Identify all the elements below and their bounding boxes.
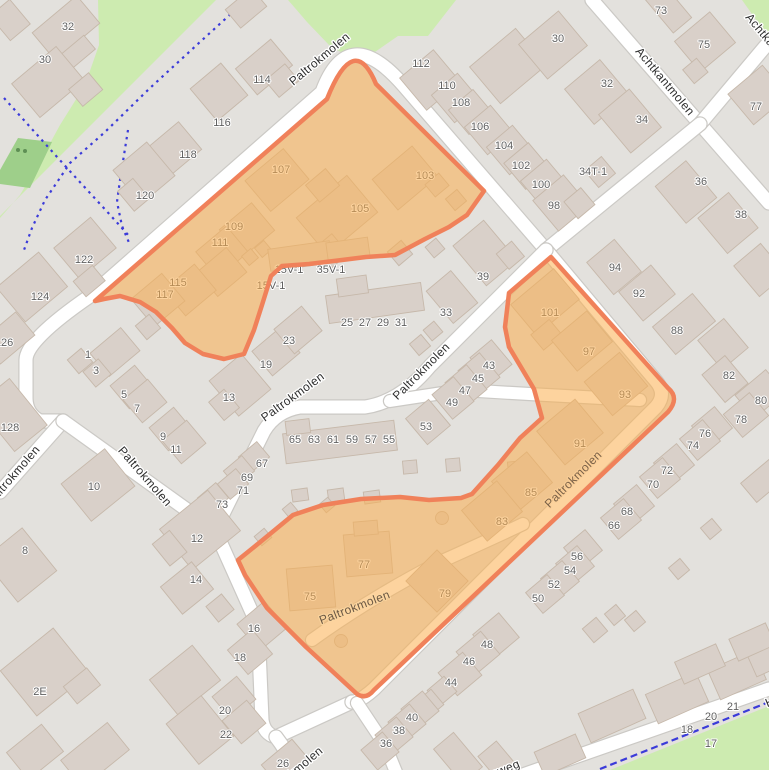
svg-text:52: 52 (548, 579, 560, 591)
svg-text:112: 112 (412, 58, 430, 70)
svg-text:67: 67 (256, 458, 268, 470)
svg-text:120: 120 (136, 190, 154, 202)
svg-text:75: 75 (698, 39, 710, 51)
svg-text:104: 104 (495, 140, 513, 152)
svg-text:31: 31 (395, 317, 407, 329)
svg-text:8: 8 (22, 545, 28, 557)
svg-text:126: 126 (0, 337, 13, 349)
svg-text:40: 40 (406, 712, 418, 724)
svg-text:122: 122 (75, 254, 93, 266)
svg-text:102: 102 (512, 160, 530, 172)
svg-text:18: 18 (234, 652, 246, 664)
svg-text:21: 21 (727, 701, 739, 713)
svg-text:18: 18 (681, 724, 693, 736)
svg-text:25: 25 (341, 317, 353, 329)
svg-text:70: 70 (647, 479, 659, 491)
svg-text:22: 22 (220, 729, 232, 741)
svg-text:30: 30 (39, 54, 51, 66)
svg-text:68: 68 (621, 506, 633, 518)
svg-text:45: 45 (472, 373, 484, 385)
svg-text:63: 63 (308, 434, 320, 446)
svg-text:5: 5 (121, 389, 127, 401)
svg-text:61: 61 (327, 434, 339, 446)
svg-text:56: 56 (571, 551, 583, 563)
svg-text:19: 19 (260, 359, 272, 371)
svg-text:36: 36 (695, 176, 707, 188)
svg-text:49: 49 (446, 397, 458, 409)
svg-text:34: 34 (636, 114, 648, 126)
svg-text:116: 116 (213, 117, 231, 129)
svg-text:50: 50 (532, 593, 544, 605)
svg-text:76: 76 (699, 428, 711, 440)
svg-text:98: 98 (548, 200, 560, 212)
svg-text:39: 39 (477, 271, 489, 283)
svg-text:32: 32 (62, 21, 74, 33)
svg-text:1: 1 (85, 349, 91, 361)
svg-text:55: 55 (383, 434, 395, 446)
svg-text:2E: 2E (33, 686, 46, 698)
svg-text:48: 48 (481, 639, 493, 651)
svg-text:114: 114 (253, 74, 271, 86)
svg-text:32: 32 (601, 78, 613, 90)
svg-text:108: 108 (452, 97, 470, 109)
svg-text:30: 30 (552, 33, 564, 45)
svg-text:36: 36 (380, 738, 392, 750)
svg-text:33: 33 (440, 307, 452, 319)
svg-text:20: 20 (705, 711, 717, 723)
svg-text:110: 110 (438, 80, 456, 92)
svg-text:11: 11 (170, 444, 181, 456)
svg-text:23: 23 (283, 335, 295, 347)
svg-text:17: 17 (705, 738, 717, 750)
svg-text:9: 9 (160, 431, 166, 443)
svg-text:65: 65 (289, 434, 301, 446)
svg-text:10: 10 (88, 481, 100, 493)
svg-text:88: 88 (671, 325, 683, 337)
svg-text:47: 47 (459, 385, 471, 397)
svg-text:73: 73 (216, 499, 228, 511)
svg-text:38: 38 (735, 209, 747, 221)
svg-text:66: 66 (608, 520, 620, 532)
svg-text:34T-1: 34T-1 (579, 166, 607, 178)
svg-text:73: 73 (655, 5, 667, 17)
svg-text:59: 59 (346, 434, 358, 446)
svg-text:71: 71 (237, 485, 249, 497)
svg-text:82: 82 (723, 370, 735, 382)
svg-text:92: 92 (633, 288, 645, 300)
svg-text:106: 106 (471, 121, 489, 133)
svg-text:128: 128 (1, 422, 19, 434)
svg-text:54: 54 (564, 565, 576, 577)
svg-text:94: 94 (609, 262, 621, 274)
svg-text:43: 43 (483, 360, 495, 372)
svg-text:46: 46 (463, 656, 475, 668)
svg-text:27: 27 (359, 317, 371, 329)
svg-text:16: 16 (248, 623, 260, 635)
svg-text:80: 80 (755, 395, 767, 407)
svg-text:57: 57 (365, 434, 377, 446)
svg-text:78: 78 (735, 414, 747, 426)
svg-text:53: 53 (420, 421, 432, 433)
svg-text:38: 38 (393, 725, 405, 737)
svg-text:118: 118 (179, 149, 197, 161)
svg-text:69: 69 (241, 472, 253, 484)
svg-text:13: 13 (223, 392, 235, 404)
svg-text:74: 74 (687, 440, 699, 452)
svg-text:29: 29 (377, 317, 389, 329)
svg-text:44: 44 (445, 677, 457, 689)
svg-text:35V-1: 35V-1 (317, 264, 346, 276)
svg-text:7: 7 (134, 403, 140, 415)
svg-text:3: 3 (93, 365, 99, 377)
svg-text:12: 12 (191, 533, 203, 545)
svg-text:100: 100 (532, 179, 550, 191)
svg-text:20: 20 (219, 705, 231, 717)
svg-text:72: 72 (661, 465, 673, 477)
svg-text:14: 14 (190, 574, 202, 586)
svg-text:77: 77 (750, 101, 762, 113)
svg-text:124: 124 (31, 291, 49, 303)
